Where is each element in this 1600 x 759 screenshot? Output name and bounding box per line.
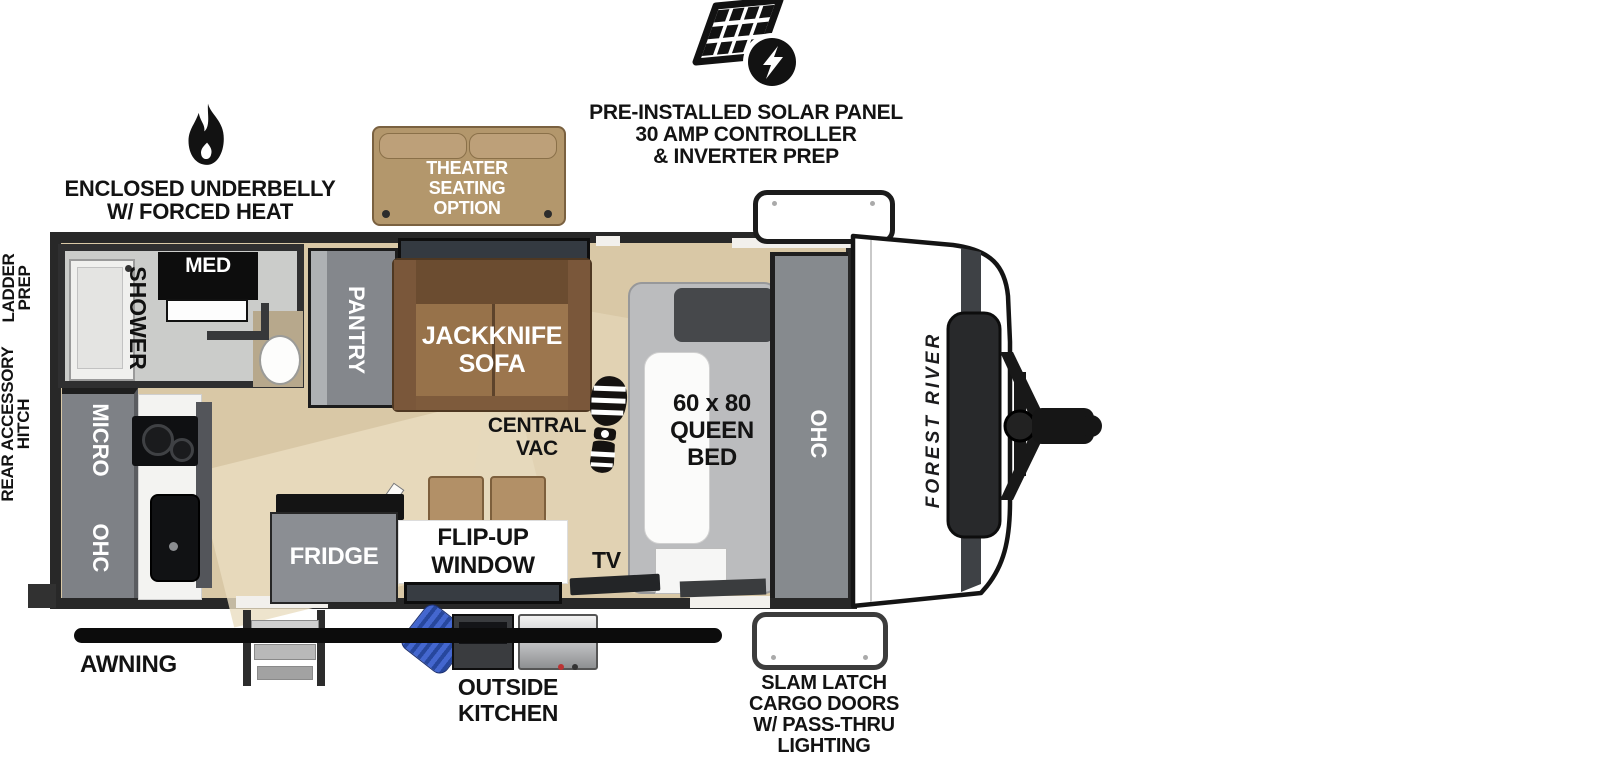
cargo-line-4: LIGHTING: [740, 736, 908, 757]
kitchen-ohc-label: OHC: [86, 508, 114, 588]
fridge-label: FRIDGE: [272, 514, 396, 600]
med-cabinet-flap: [166, 299, 248, 322]
hitch-ball-end: [1080, 415, 1102, 437]
kitchen-ohc-text: OHC: [87, 524, 113, 573]
cargo-doors-callout: SLAM LATCH CARGO DOORS W/ PASS-THRU LIGH…: [740, 673, 908, 757]
screw-icon: [863, 655, 868, 660]
flip-up-window: [404, 582, 562, 604]
outside-kitchen-line-1: OUTSIDE: [418, 674, 598, 700]
solar-line-2: 30 AMP CONTROLLER: [560, 124, 932, 146]
sofa-front-edge: [416, 396, 568, 410]
flip-window-line-2: WINDOW: [399, 552, 567, 580]
sofa-line-1: JACKKNIFE: [398, 322, 586, 350]
brand-text: FOREST RIVER: [923, 332, 945, 508]
bath-partition-h: [207, 331, 269, 340]
kitchen-sink: [150, 494, 200, 582]
sofa-back: [394, 260, 590, 304]
pantry-light-face: [311, 251, 327, 405]
flip-window-label: FLIP-UP WINDOW: [399, 521, 567, 580]
solar-panel-icon: [686, 0, 808, 98]
ladder-prep-label: LADDER PREP: [2, 252, 32, 324]
cargo-line-1: SLAM LATCH: [740, 673, 908, 694]
rear-bumper: [28, 584, 56, 608]
fridge: FRIDGE: [270, 512, 398, 604]
flip-window-label-box: FLIP-UP WINDOW: [398, 520, 568, 584]
wardrobe-ohc-text: OHC: [805, 410, 831, 459]
toilet: [259, 335, 301, 385]
central-vac-line-2: VAC: [487, 437, 587, 460]
theater-line-1: THEATER: [374, 158, 560, 178]
flame-icon: [182, 100, 234, 174]
window-top-small: [596, 236, 620, 246]
rear-hitch-line-2: HITCH: [16, 346, 32, 501]
hitch-jack-wheel: [1005, 411, 1035, 441]
theater-line-3: OPTION: [374, 198, 560, 218]
entry-mat: [680, 579, 767, 598]
screw-icon: [870, 201, 875, 206]
pantry-label: PANTRY: [343, 260, 369, 400]
sofa-label: JACKKNIFE SOFA: [398, 322, 586, 378]
central-vac-label: CENTRAL VAC: [487, 414, 587, 460]
micro-text: MICRO: [87, 403, 113, 476]
med-label: MED: [158, 252, 258, 277]
brand-label: FOREST RIVER: [920, 300, 948, 540]
outside-kitchen-callout: OUTSIDE KITCHEN: [418, 674, 598, 726]
awning-bar: [74, 628, 722, 643]
bed-line-2: QUEEN: [650, 417, 774, 444]
shower-pan-inner: [77, 267, 123, 369]
shower-text: SHOWER: [125, 266, 152, 370]
underbelly-line-2: W/ FORCED HEAT: [28, 200, 372, 223]
med-cabinet: MED: [158, 252, 258, 300]
theater-seating-option: THEATER SEATING OPTION: [372, 126, 566, 226]
bed-label: 60 x 80 QUEEN BED: [650, 390, 774, 471]
front-door-gap: [690, 596, 770, 608]
underbelly-callout-text: ENCLOSED UNDERBELLY W/ FORCED HEAT: [28, 177, 372, 223]
bed-headboard-shelf: [674, 288, 774, 342]
rock-guard: [948, 313, 1000, 537]
pantry-text: PANTRY: [343, 286, 369, 374]
solar-callout-text: PRE-INSTALLED SOLAR PANEL 30 AMP CONTROL…: [560, 102, 932, 168]
theater-cushion-left: [379, 133, 467, 159]
micro-label: MICRO: [86, 396, 114, 484]
cooker-knob-red: [558, 664, 564, 670]
flip-window-line-1: FLIP-UP: [399, 524, 567, 552]
bath-partition-v: [261, 303, 269, 340]
floorplan-canvas: PRE-INSTALLED SOLAR PANEL 30 AMP CONTROL…: [0, 0, 1600, 759]
solar-line-3: & INVERTER PREP: [560, 146, 932, 168]
entry-step-2: [254, 644, 316, 660]
outside-kitchen-line-2: KITCHEN: [418, 700, 598, 726]
central-vac-line-1: CENTRAL: [487, 414, 587, 437]
shower-label: SHOWER: [126, 262, 150, 374]
bed-line-3: BED: [650, 444, 774, 471]
theater-cushion-right: [469, 133, 557, 159]
entry-step-rail-left: [243, 610, 251, 686]
cooker-knob-dark: [572, 664, 578, 670]
sofa-line-2: SOFA: [398, 350, 586, 378]
theater-line-2: SEATING: [374, 178, 560, 198]
cargo-line-2: CARGO DOORS: [740, 694, 908, 715]
cooktop: [132, 416, 198, 466]
wardrobe-ohc-label: OHC: [805, 394, 831, 474]
theater-label: THEATER SEATING OPTION: [374, 158, 560, 218]
solar-line-1: PRE-INSTALLED SOLAR PANEL: [560, 102, 932, 124]
cargo-line-3: W/ PASS-THRU: [740, 715, 908, 736]
burner-small: [170, 438, 194, 462]
sink-faucet: [169, 542, 178, 551]
bed-line-1: 60 x 80: [650, 390, 774, 417]
rear-hitch-label: REAR ACCESSORY HITCH: [0, 356, 32, 492]
front-cap: [835, 222, 1115, 627]
underbelly-line-1: ENCLOSED UNDERBELLY: [28, 177, 372, 200]
screw-icon: [771, 655, 776, 660]
screw-icon: [772, 201, 777, 206]
ladder-line-2: PREP: [17, 253, 33, 322]
entry-step-3: [257, 666, 313, 680]
tv-label: TV: [592, 548, 621, 572]
awning-label: AWNING: [80, 652, 177, 677]
